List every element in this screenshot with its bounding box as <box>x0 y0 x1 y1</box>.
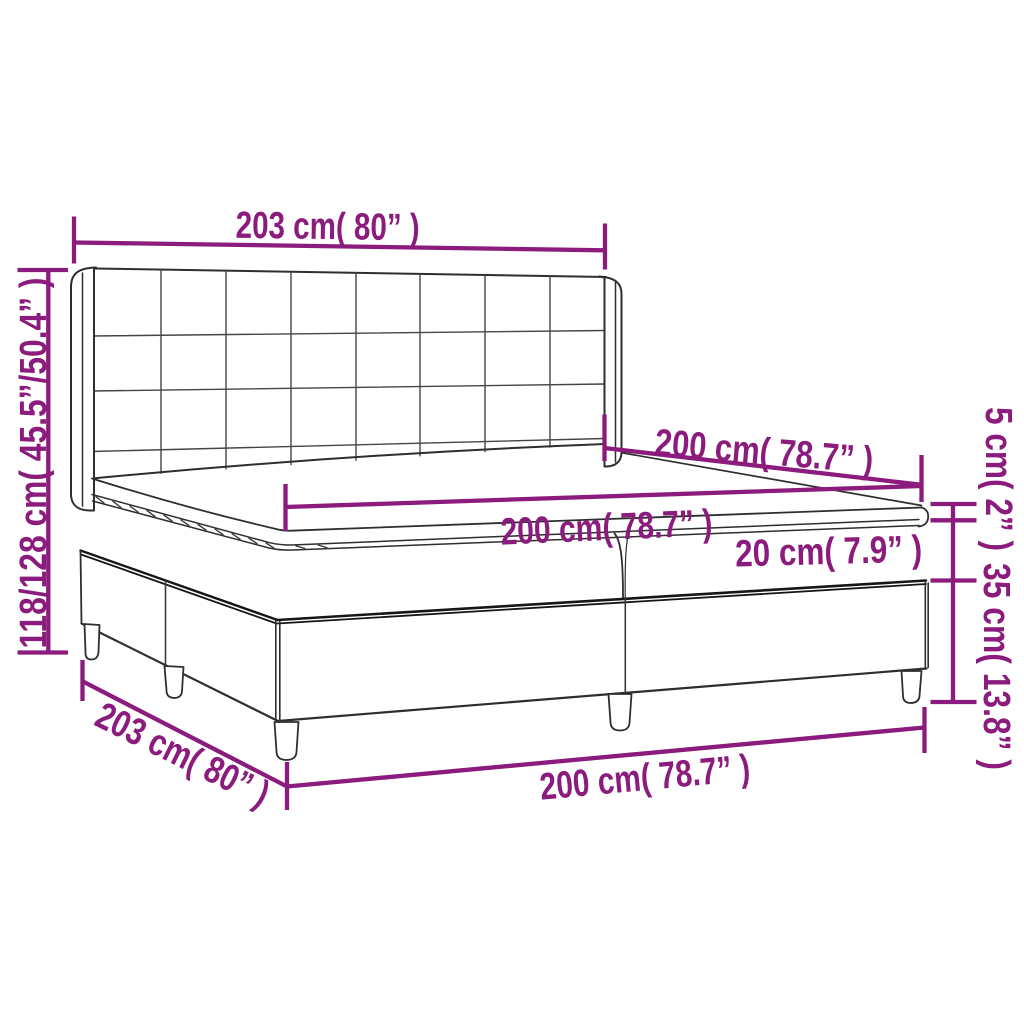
svg-text:5 cm( 2” ): 5 cm( 2” ) <box>977 407 1019 551</box>
svg-text:20 cm( 7.9” ): 20 cm( 7.9” ) <box>735 529 923 576</box>
svg-text:35 cm( 13.8” ): 35 cm( 13.8” ) <box>975 563 1017 770</box>
svg-text:203 cm( 80” ): 203 cm( 80” ) <box>235 205 420 250</box>
svg-text:118/128 cm( 45.5”/50.4” ): 118/128 cm( 45.5”/50.4” ) <box>13 278 55 649</box>
